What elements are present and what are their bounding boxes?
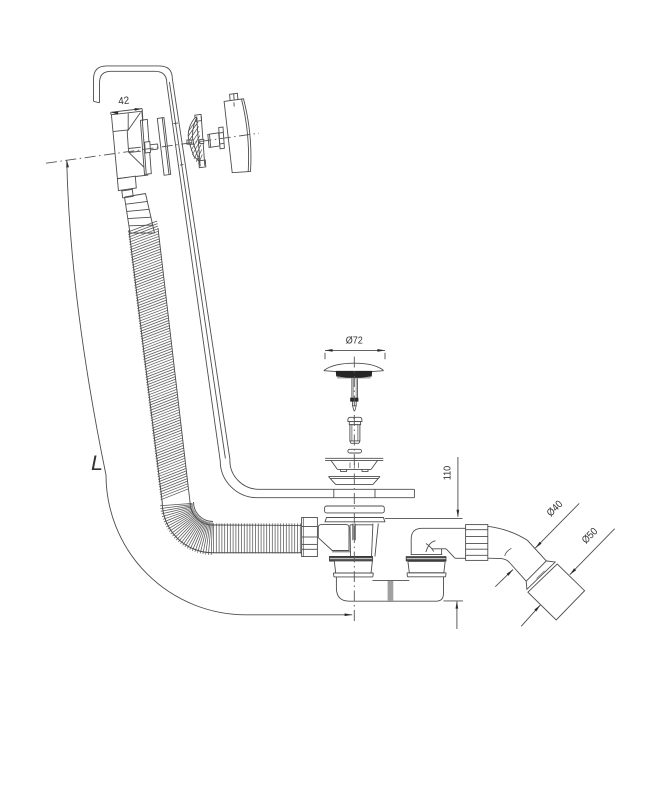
- svg-text:42: 42: [118, 95, 130, 107]
- svg-text:Ø40: Ø40: [545, 499, 565, 519]
- svg-text:110: 110: [442, 465, 453, 480]
- svg-text:Ø50: Ø50: [580, 526, 600, 546]
- svg-text:L: L: [91, 451, 103, 475]
- svg-text:Ø72: Ø72: [346, 336, 363, 347]
